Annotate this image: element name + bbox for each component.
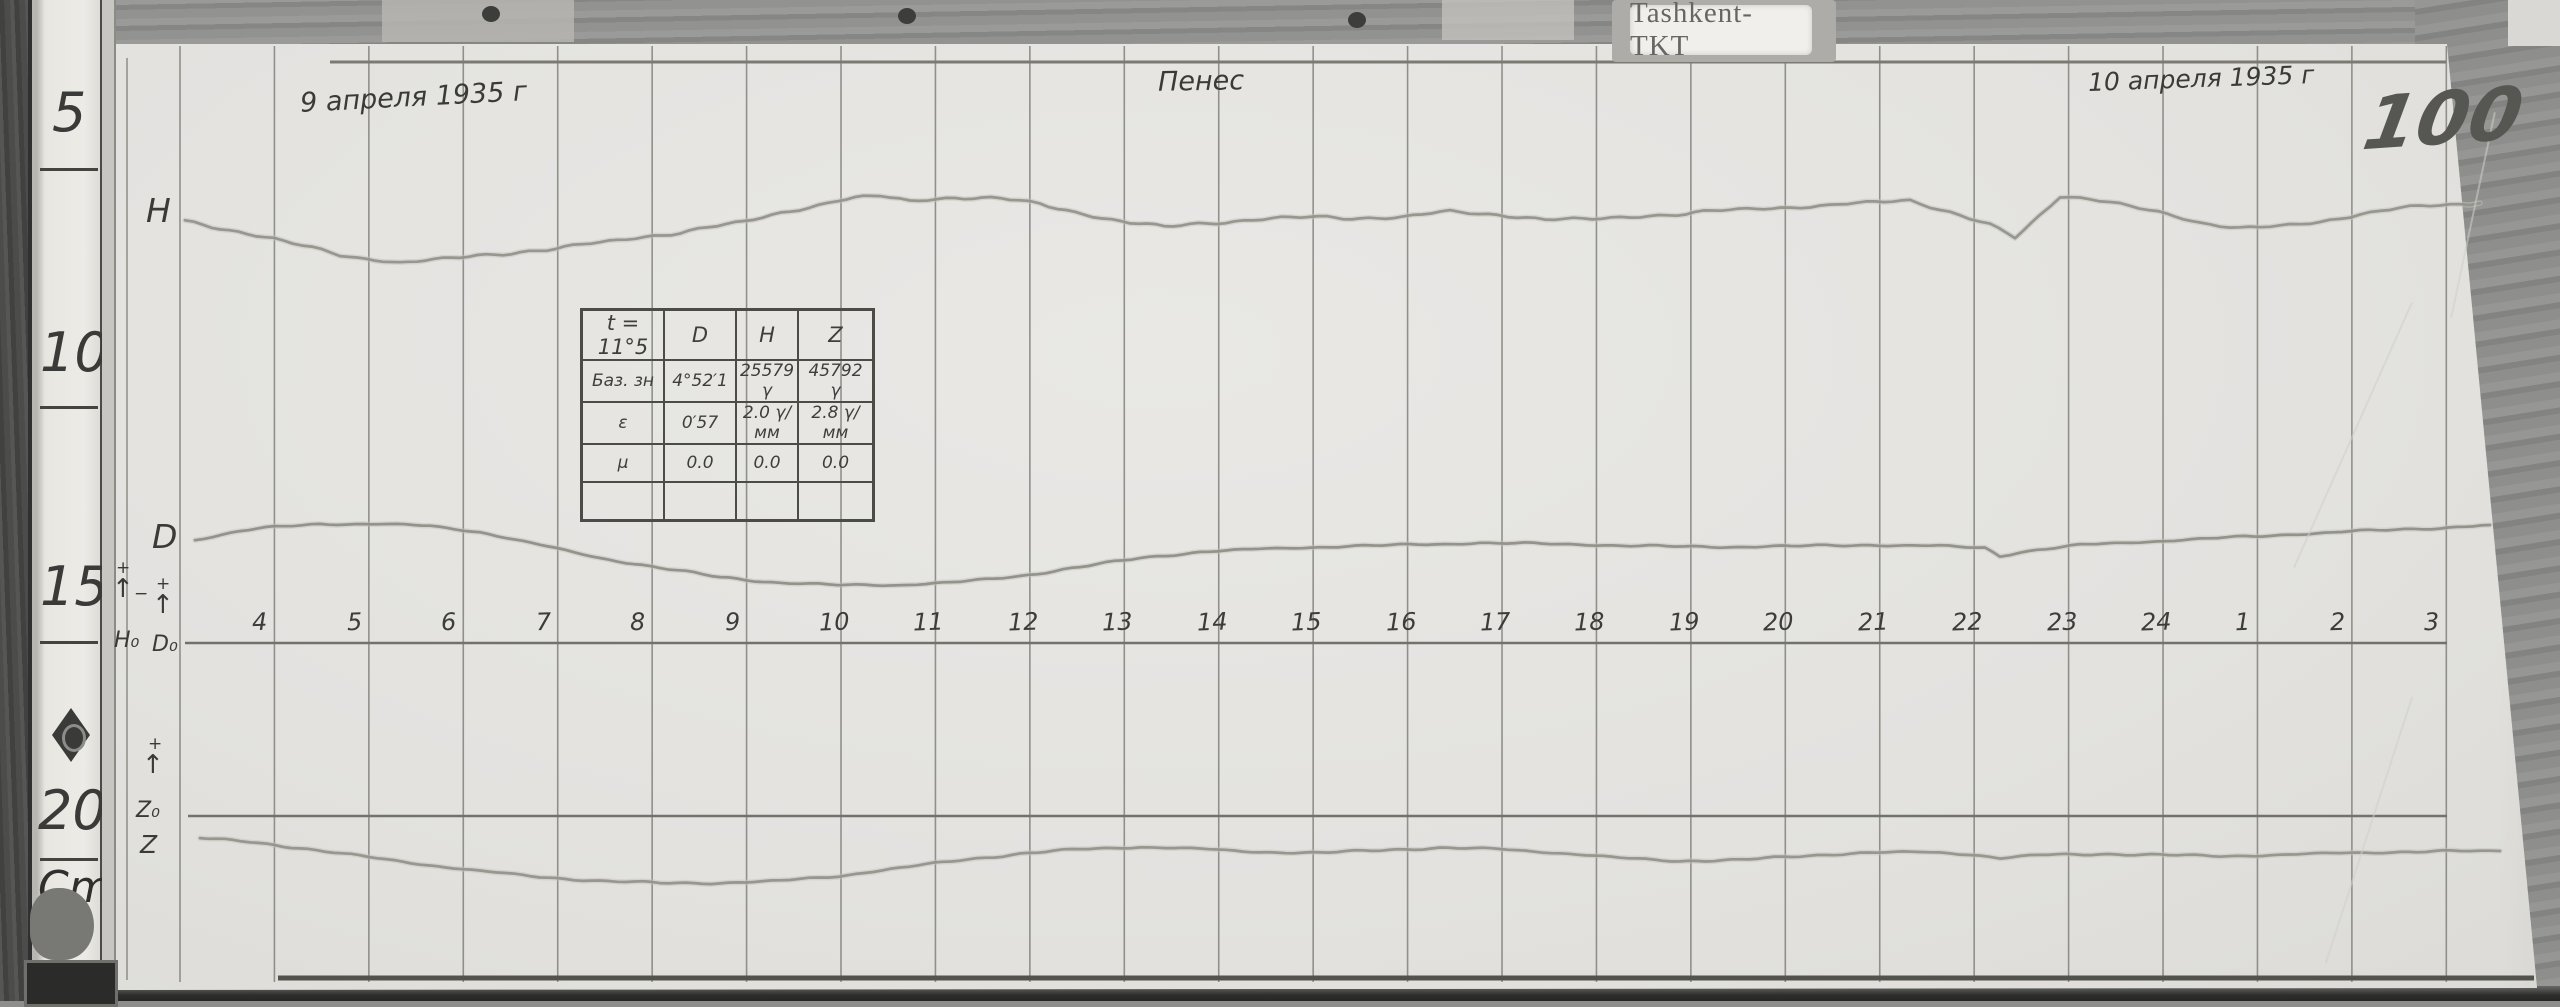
d-trace [195, 524, 2490, 586]
magnetogram-photo: { "scene": { "station_label": "Tashkent-… [0, 0, 2560, 1001]
cal-table-cell: ε [582, 402, 665, 444]
hour-label-8: 8 [630, 610, 646, 635]
minus-sign: − [134, 586, 148, 603]
hour-label-23: 23 [2046, 609, 2077, 634]
cm-ruler-edge [102, 0, 116, 976]
cal-table-cell: 0.0 [736, 444, 798, 482]
cal-table-cell [664, 482, 736, 520]
cal-table-cell: 2.0 γ/мм [736, 402, 798, 444]
cal-table-cell [798, 482, 874, 520]
sheet-number: 100 [2358, 77, 2528, 162]
cal-table-cell: 0.0 [664, 444, 736, 482]
hour-label-3: 3 [2424, 610, 2440, 635]
ruler-tick-line [40, 406, 98, 409]
d0-baseline-label: D₀ [152, 634, 178, 656]
up-arrow-icon: ↑ [152, 592, 174, 618]
cal-table-cell: 0′57 [664, 402, 736, 444]
cal-table-cell [582, 482, 665, 520]
cal-table-cell: 25579 γ [736, 360, 798, 402]
cal-table-header: Z [798, 310, 874, 361]
screw-head-icon [1348, 12, 1366, 28]
adhesive-tape [1442, 0, 1574, 40]
cal-table-header: t = 11°5 [582, 310, 665, 361]
cal-table-cell [736, 482, 798, 520]
adhesive-tape [382, 0, 574, 42]
h0-baseline-label: H₀ [114, 630, 139, 652]
hour-label-12: 12 [1007, 609, 1038, 634]
ruler-foot-block [24, 960, 118, 1007]
h-trace-label: H [146, 194, 171, 227]
z-trace-label: Z [140, 832, 157, 857]
hour-label-18: 18 [1574, 609, 1605, 634]
cal-table-cell: 0.0 [798, 444, 874, 482]
ruler-tick-5: 5 [52, 86, 86, 140]
ruler-tick-line [40, 168, 98, 171]
hour-label-16: 16 [1385, 609, 1416, 634]
cal-table-cell: 45792 γ [798, 360, 874, 402]
hour-label-19: 19 [1668, 609, 1699, 634]
cal-table-cell: Баз. зн [582, 360, 665, 402]
d-trace [195, 524, 2490, 586]
hour-label-10: 10 [819, 609, 850, 634]
hour-label-13: 13 [1102, 609, 1133, 634]
hour-label-1: 1 [2235, 610, 2251, 635]
hour-label-14: 14 [1196, 609, 1227, 634]
center-note: Пенес [1158, 67, 1244, 95]
ruler-damage-patch [30, 888, 94, 960]
screw-head-icon [482, 6, 500, 22]
ruler-tick-10: 10 [40, 326, 109, 380]
calibration-table: t = 11°5DHZБаз. зн4°52′125579 γ45792 γε0… [580, 308, 875, 522]
ruler-tick-20: 20 [38, 784, 107, 838]
hour-label-7: 7 [535, 610, 551, 635]
d-trace-label: D [152, 520, 177, 553]
cal-table-cell: μ [582, 444, 665, 482]
hour-label-21: 21 [1857, 609, 1888, 634]
hour-label-22: 22 [1952, 609, 1983, 634]
cal-table-cell: 4°52′1 [664, 360, 736, 402]
up-arrow-icon: ↑ [142, 752, 164, 778]
screw-head-icon [898, 8, 916, 24]
hour-label-6: 6 [441, 610, 457, 635]
hour-label-11: 11 [913, 609, 944, 634]
cal-table-header: D [664, 310, 736, 361]
hour-label-9: 9 [724, 610, 740, 635]
hour-label-24: 24 [2141, 609, 2172, 634]
h-trace [185, 196, 2480, 263]
ruler-tick-line [40, 641, 98, 644]
date-annotation-right: 10 апреля 1935 г [2088, 62, 2315, 95]
z-trace [200, 838, 2500, 884]
trace-plot [0, 0, 2560, 1001]
hour-label-15: 15 [1291, 609, 1322, 634]
cm-ruler: 5101520Cm [28, 0, 102, 978]
hour-label-2: 2 [2329, 610, 2345, 635]
z0-baseline-label: Z₀ [136, 800, 160, 822]
diamond-screw-slot-icon [62, 724, 86, 752]
hour-label-4: 4 [252, 610, 268, 635]
ruler-tick-15: 15 [40, 560, 109, 614]
hour-label-17: 17 [1480, 609, 1511, 634]
hour-label-5: 5 [346, 610, 362, 635]
ruler-tick-line [40, 858, 98, 861]
station-label: Tashkent-TKT [1630, 5, 1812, 55]
cal-table-cell: 2.8 γ/мм [798, 402, 874, 444]
cal-table-header: H [736, 310, 798, 361]
hour-label-20: 20 [1763, 609, 1794, 634]
up-arrow-icon: ↑ [112, 576, 134, 602]
